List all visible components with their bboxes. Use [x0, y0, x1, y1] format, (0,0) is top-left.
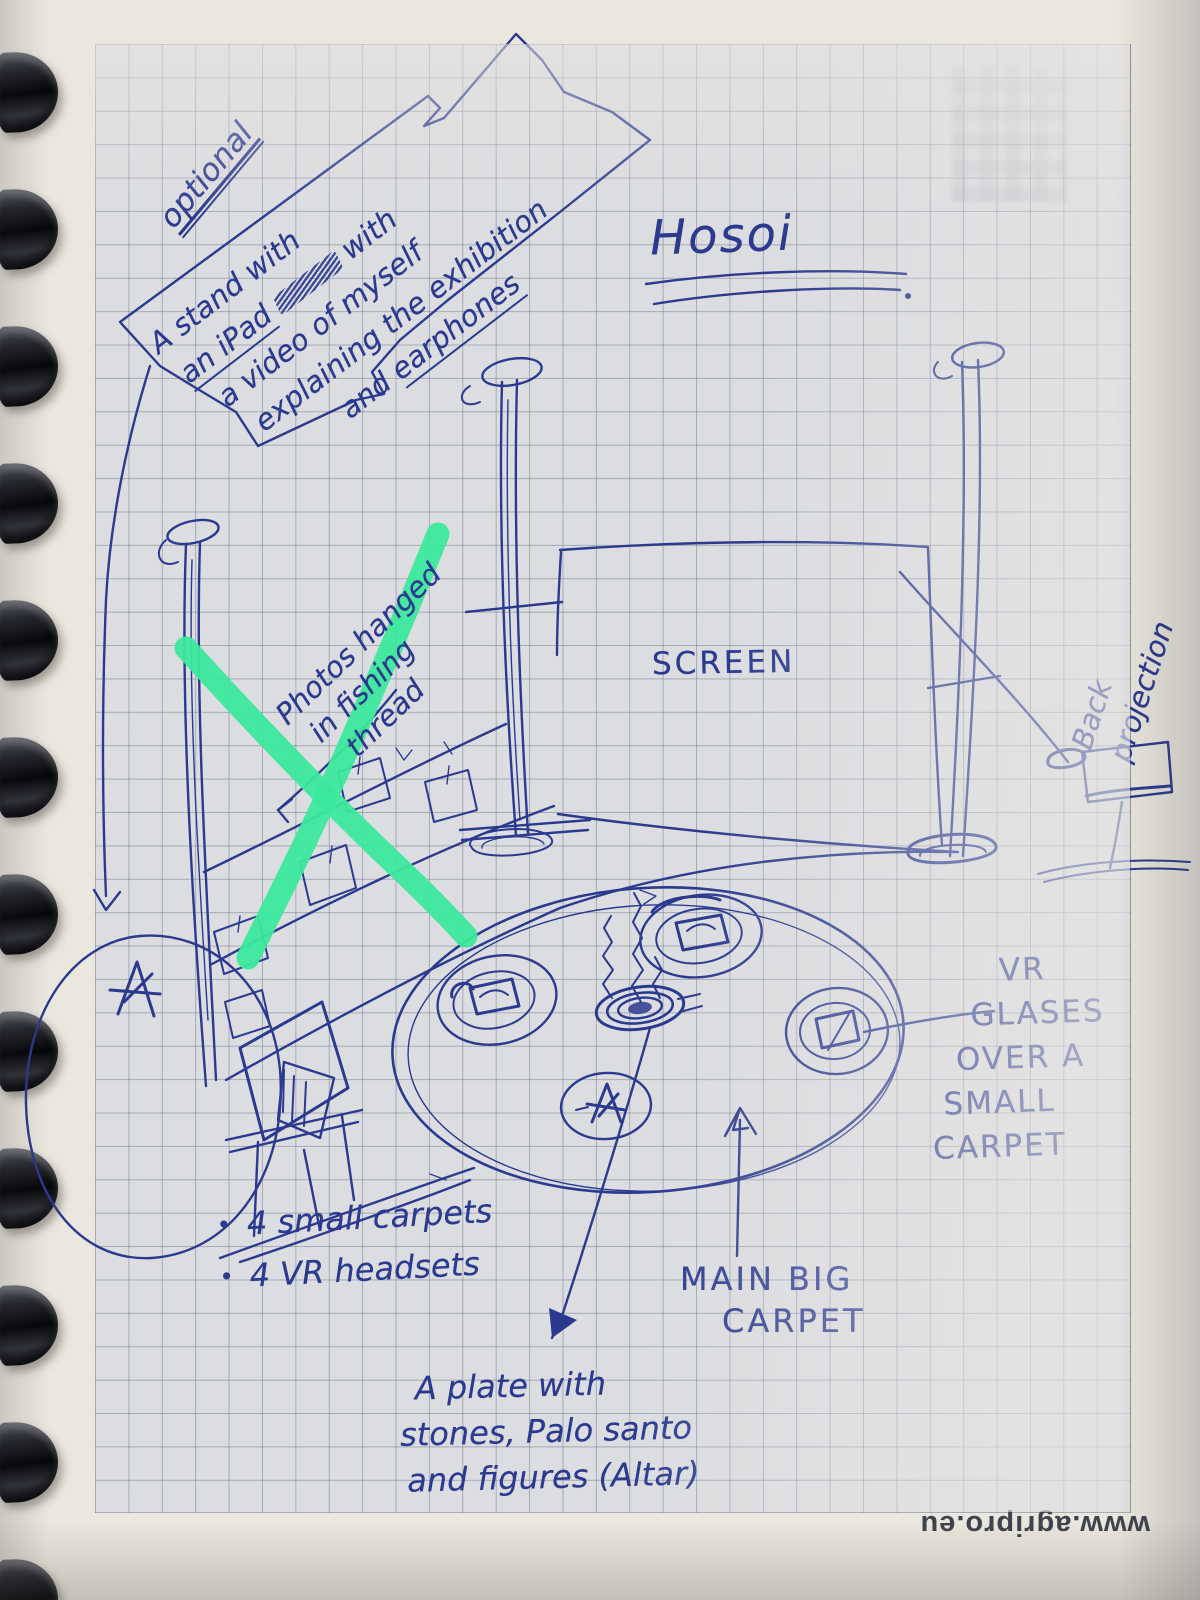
main-carpet-label-line: MAIN BIG: [680, 1258, 866, 1300]
notebook-photo: optional A stand with an iPadwith a vide…: [0, 0, 1200, 1600]
watermark-print: www.agripro.eu: [920, 1508, 1150, 1541]
bullet: •: [215, 1199, 232, 1252]
spiral-coil: [0, 736, 59, 818]
altar-note-line: and figures (Altar): [401, 1450, 700, 1504]
qr-code-ghost: [952, 66, 1068, 202]
spiral-coil: [0, 1284, 59, 1366]
altar-note: A plate with stones, Palo santo and figu…: [398, 1358, 700, 1504]
spiral-coil: [0, 462, 59, 544]
spiral-coil: [0, 1010, 59, 1092]
vr-note-line: VR: [926, 945, 1104, 995]
spiral-coil: [0, 1421, 59, 1503]
spiral-coil: [0, 599, 59, 681]
main-carpet-label: MAIN BIG CARPET: [680, 1258, 866, 1342]
vr-note-line: CARPET: [932, 1121, 1110, 1171]
spiral-coil: [0, 51, 59, 133]
supply-item-text: 4 small carpets: [246, 1192, 493, 1243]
spiral-coil: [0, 1147, 59, 1229]
vr-glasses-note: VR GLASES OVER A SMALL CARPET: [926, 945, 1110, 1171]
altar-note-line: A plate with: [398, 1358, 697, 1412]
page-title: Hosoi: [649, 206, 794, 267]
screen-label: SCREEN: [652, 644, 796, 682]
spiral-coil: [0, 188, 59, 270]
spiral-coil: [0, 1558, 59, 1600]
main-carpet-label-line: CARPET: [680, 1300, 866, 1342]
vr-note-line: GLASES: [928, 989, 1106, 1039]
vr-note-line: SMALL: [931, 1077, 1109, 1127]
supply-item-text: 4 VR headsets: [249, 1245, 481, 1295]
altar-note-line: stones, Palo santo: [399, 1404, 698, 1458]
supplies-list: •4 small carpets •4 VR headsets: [215, 1185, 496, 1303]
bullet: •: [218, 1250, 235, 1303]
spiral-coil: [0, 873, 59, 955]
vr-note-line: OVER A: [929, 1033, 1107, 1083]
spiral-coil: [0, 325, 59, 407]
